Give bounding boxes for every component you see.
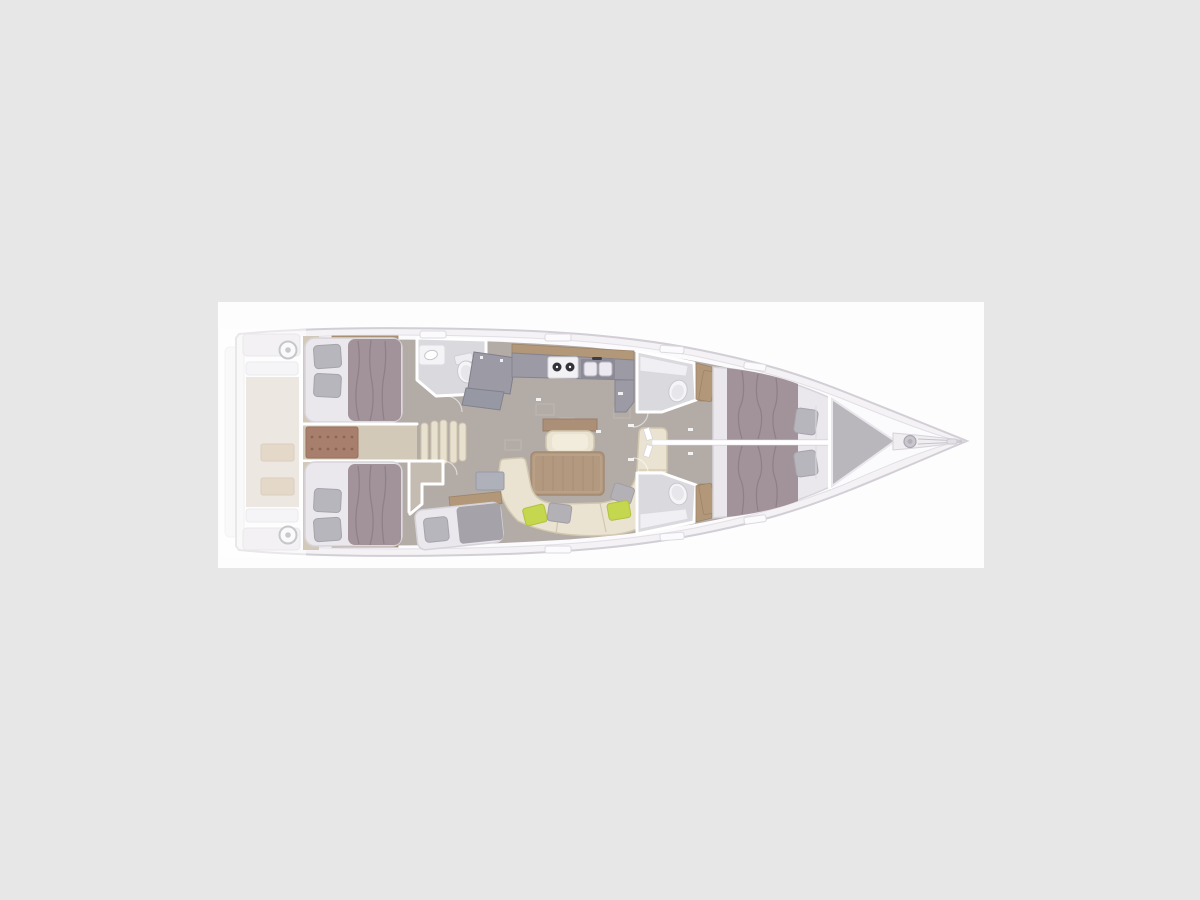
stove — [548, 357, 578, 378]
faucet — [592, 357, 602, 360]
yacht-floor-plan-figure — [0, 0, 1200, 900]
companionway-steps — [421, 420, 466, 464]
salon-seat — [546, 431, 594, 453]
yacht-floor-plan — [0, 0, 1200, 900]
dining-table — [531, 452, 604, 495]
double-sink — [581, 357, 615, 379]
aft-cabin-top — [303, 336, 402, 424]
engine-room — [303, 424, 417, 461]
bow-cleat — [947, 439, 957, 444]
gray-cushion — [547, 503, 572, 524]
sideboard — [543, 419, 597, 431]
cockpit — [221, 329, 306, 558]
cockpit-fade-overlay — [221, 329, 306, 558]
side-table — [476, 472, 504, 490]
green-cushion — [607, 500, 632, 521]
aft-cabin-bottom — [303, 462, 402, 550]
